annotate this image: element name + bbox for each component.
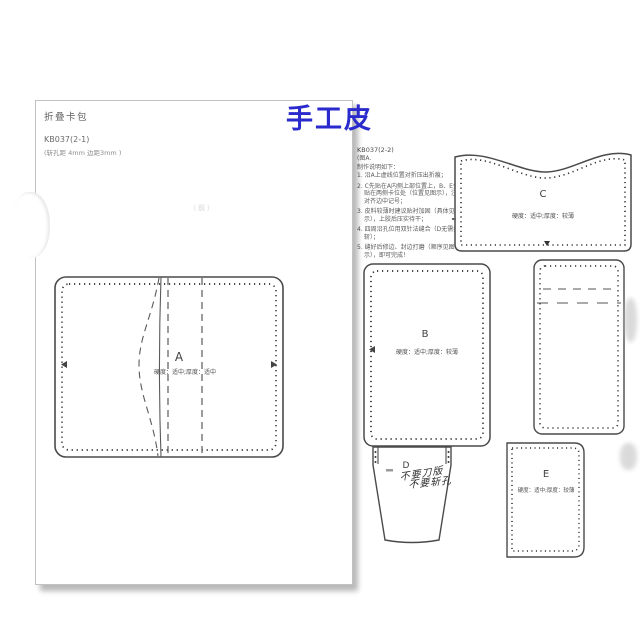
pattern-code-page2: KB037(2-2) <box>357 146 465 154</box>
smudge <box>620 443 637 470</box>
instruction-step: 2. C先贴在A内侧上部位置上，B、E分别贴在两侧卡位处（位置见图示），注意对齐… <box>357 183 465 206</box>
piece-c-diagram <box>452 144 634 258</box>
step-text: 皮料较薄时建议贴衬加固（具体见图示），上胶后压实待干； <box>364 208 461 223</box>
edge-tick-icon <box>386 469 393 472</box>
piece-c-outline <box>455 153 631 251</box>
hole-spacing-spec: (斩孔距 4mm 边距3mm ) <box>44 147 121 157</box>
piece-f-outline <box>534 260 624 434</box>
instruction-step: 5. 缝好后修边、封边打磨（顺序见图示），即可完成！ <box>357 244 465 259</box>
piece-f-diagram <box>532 258 626 436</box>
edge-tick-icon <box>452 218 456 220</box>
step-number: 2. <box>357 183 363 190</box>
step-text: C先贴在A内侧上部位置上，B、E分别贴在两侧卡位处（位置见图示），注意对齐边中记… <box>364 183 465 205</box>
piece-a-label: A <box>169 350 189 364</box>
piece-e-diagram <box>504 440 588 560</box>
step-number: 4. <box>357 226 363 233</box>
pattern-page-2: KB037(2-2) (图A. 制作说明如下： 1. 沿A上虚线位置对折压出折痕… <box>352 85 640 640</box>
smudge <box>624 298 637 342</box>
pattern-page-1: 折叠卡包 KB037(2-1) (斩孔距 4mm 边距3mm ) （前） A 硬… <box>35 100 353 585</box>
step-number: 5. <box>357 244 363 251</box>
scanned-pattern-sheet: 手工皮 折叠卡包 KB037(2-1) (斩孔距 4mm 边距3mm ) （前）… <box>0 0 640 640</box>
instruction-block: KB037(2-2) (图A. 制作说明如下： 1. 沿A上虚线位置对折压出折痕… <box>357 146 465 262</box>
piece-c-note: 硬度：适中;厚度：较薄 <box>498 211 588 220</box>
shop-watermark-text: 手工皮 <box>286 106 373 133</box>
pattern-title: 折叠卡包 <box>44 109 88 123</box>
step-text: 沿A上虚线位置对折压出折痕； <box>365 172 447 179</box>
step-number: 1. <box>357 172 363 179</box>
instruction-step: 4. 四周沿孔位用双针法缝合（D无需打斩）； <box>357 226 465 241</box>
step-number: 3. <box>357 208 363 215</box>
smudge <box>12 192 50 258</box>
piece-a-note: 硬度：适中;厚度：适中 <box>140 367 230 376</box>
instructions-intro: 制作说明如下： <box>357 164 465 172</box>
instruction-step: 3. 皮料较薄时建议贴衬加固（具体见图示），上胶后压实待干； <box>357 208 465 223</box>
piece-e-note: 硬度：适中;厚度：较薄 <box>506 486 586 494</box>
pattern-code-page1: KB037(2-1) <box>44 135 89 144</box>
piece-b-note: 硬度：适中;厚度：较薄 <box>382 347 472 356</box>
piece-e-label: E <box>528 469 564 480</box>
step-text: 四周沿孔位用双针法缝合（D无需打斩）； <box>364 226 459 241</box>
piece-e-outline <box>507 443 584 557</box>
piece-d-diagram <box>364 444 460 548</box>
instruction-step: 1. 沿A上虚线位置对折压出折痕； <box>357 172 465 180</box>
figure-label: (图A. <box>357 155 465 163</box>
step-text: 缝好后修边、封边打磨（顺序见图示），即可完成！ <box>364 244 455 259</box>
faint-pencil-note: （前） <box>189 203 216 213</box>
piece-b-label: B <box>415 329 435 340</box>
piece-c-label: C <box>525 189 561 200</box>
